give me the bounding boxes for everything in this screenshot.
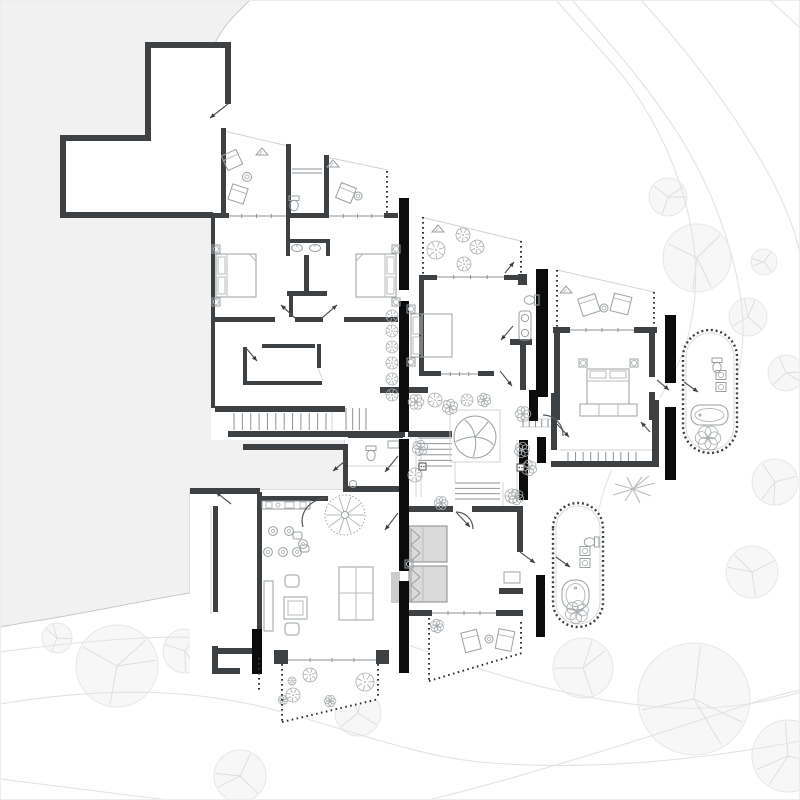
accent-wall xyxy=(665,315,676,383)
accent-wall xyxy=(399,439,409,571)
wall-segment xyxy=(243,381,322,385)
wall-segment xyxy=(60,135,151,141)
wall-segment xyxy=(551,461,659,467)
wall-segment xyxy=(203,213,229,218)
twin-bed-symbol xyxy=(409,526,447,562)
wall-segment xyxy=(60,212,213,218)
accent-wall xyxy=(665,407,676,480)
accent-wall xyxy=(399,581,409,673)
tree-icon xyxy=(649,178,687,216)
floor-plate xyxy=(557,270,657,327)
wall-segment xyxy=(145,42,151,141)
wall-segment xyxy=(517,506,523,552)
tree-icon xyxy=(729,298,767,336)
wall-segment xyxy=(649,327,655,377)
wall-segment xyxy=(225,42,231,104)
wall-segment xyxy=(324,155,329,218)
wall-segment xyxy=(60,135,66,218)
floor-plate xyxy=(326,155,390,218)
wall-segment xyxy=(243,347,247,385)
floor-plate xyxy=(429,617,522,680)
wall-segment xyxy=(499,588,523,594)
wall-segment xyxy=(295,317,323,322)
floor-plate xyxy=(421,217,521,277)
floor-plate xyxy=(222,130,290,218)
wall-segment xyxy=(262,344,315,348)
floor-plan-page xyxy=(0,0,800,800)
wall-segment xyxy=(243,444,345,450)
wall-segment xyxy=(343,444,348,490)
wall-segment xyxy=(384,213,398,218)
tree-icon xyxy=(663,224,731,292)
wall-segment xyxy=(215,406,345,412)
accent-wall xyxy=(537,437,546,463)
floor-plate xyxy=(190,490,410,673)
wall-segment xyxy=(274,650,288,664)
accent-wall xyxy=(399,198,409,290)
tree-icon xyxy=(214,750,266,800)
wall-segment xyxy=(472,506,522,512)
wall-segment xyxy=(286,239,330,243)
wall-segment xyxy=(286,213,329,218)
tree-icon xyxy=(751,249,777,275)
wall-segment xyxy=(376,650,389,664)
accent-wall xyxy=(536,269,548,397)
wall-segment xyxy=(304,255,309,295)
wall-segment xyxy=(287,291,327,296)
wall-segment xyxy=(212,668,240,674)
wall-segment xyxy=(348,433,403,438)
tree-icon xyxy=(768,355,800,391)
wall-segment xyxy=(419,371,441,376)
wall-segment xyxy=(221,128,226,218)
floor-plate xyxy=(405,503,547,623)
level-marker xyxy=(419,463,426,470)
tree-icon xyxy=(752,459,798,505)
stone-wall xyxy=(683,330,737,453)
wall-segment xyxy=(190,488,260,494)
counter-symbol xyxy=(391,572,400,603)
wall-segment xyxy=(286,239,290,256)
level-marker xyxy=(517,464,524,471)
twin-bed-symbol xyxy=(409,566,447,602)
wall-segment xyxy=(257,492,262,632)
wall-segment xyxy=(286,218,290,240)
tree-icon xyxy=(42,623,72,653)
wall-segment xyxy=(213,317,275,322)
tree-icon xyxy=(638,643,750,755)
accent-wall xyxy=(536,575,545,637)
wall-segment xyxy=(551,393,557,450)
wall-segment xyxy=(317,344,321,368)
tree-icon xyxy=(553,638,613,698)
floor-plate xyxy=(286,145,330,218)
floor-plan-canvas xyxy=(0,0,800,800)
wall-segment xyxy=(408,610,432,616)
contour-line xyxy=(770,0,800,28)
tree-icon xyxy=(726,546,778,598)
wall-segment xyxy=(652,400,659,467)
wall-segment xyxy=(496,610,523,616)
palm-plant-icon xyxy=(613,476,655,503)
accent-wall xyxy=(252,629,262,674)
wall-segment xyxy=(326,239,330,256)
wall-segment xyxy=(213,506,218,612)
bathroom-pod xyxy=(683,330,737,453)
wall-segment xyxy=(518,274,527,285)
wall-segment xyxy=(145,42,231,48)
wall-segment xyxy=(408,431,452,437)
contour-line xyxy=(0,779,168,800)
wall-segment xyxy=(478,371,494,376)
wall-segment xyxy=(520,345,526,390)
tree-icon xyxy=(76,625,158,707)
tree-icon xyxy=(752,720,800,792)
